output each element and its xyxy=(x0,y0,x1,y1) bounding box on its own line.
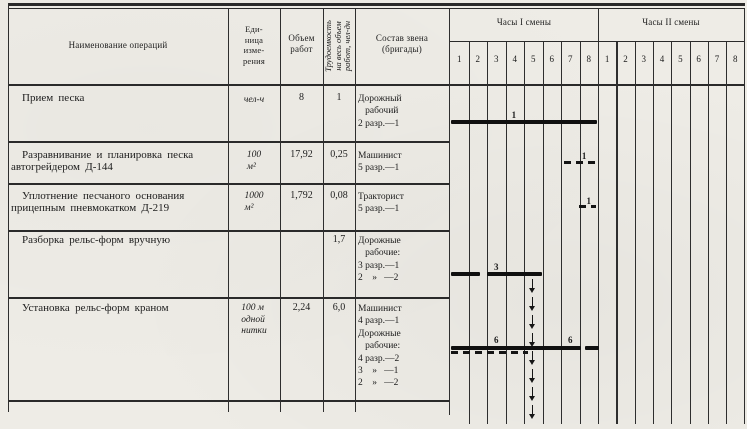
table-top-rule xyxy=(8,3,745,6)
transfer-arrow-dash xyxy=(532,405,534,414)
gantt-bar-label: 1 xyxy=(577,151,591,161)
gantt-bar xyxy=(585,346,599,350)
row-unit-text: чел-ч xyxy=(244,95,264,107)
header-shift1-title: Часы I смены xyxy=(450,17,598,28)
row-crew-list: Машинист 5 разр.—1 xyxy=(358,150,448,175)
transfer-arrow-head-icon xyxy=(529,306,535,311)
hour-cell-shift2-7: 7 xyxy=(708,54,726,65)
row-unit-cell: 1000 м² xyxy=(228,191,280,214)
header-crew: Состав звена (бригады) xyxy=(356,33,448,54)
row-crew-list: Машинист 4 разр.—1 Дорожные рабочие: 4 р… xyxy=(358,303,448,390)
header-operations: Наименование операций xyxy=(10,40,226,51)
gantt-col-line xyxy=(690,42,691,424)
transfer-arrow-head-icon xyxy=(529,324,535,329)
hour-cell-shift2-3: 3 xyxy=(635,54,653,65)
col-line-shift-divider xyxy=(598,9,599,424)
row-unit-cell: 100 м² xyxy=(228,150,280,173)
gantt-bar xyxy=(451,120,597,124)
transfer-arrow-dash xyxy=(532,351,534,360)
hour-cell-shift1-1: 1 xyxy=(450,54,469,65)
row-labor-value: 6,0 xyxy=(323,303,355,314)
header-shift2-title: Часы II смены xyxy=(598,17,744,28)
table-right-border xyxy=(744,9,745,424)
transfer-arrow-head-icon xyxy=(529,396,535,401)
row-operation-name: Разравнивание и планировка пескаавтогрей… xyxy=(11,150,225,173)
header-labor-rotated: Трудоемкость на весь объем работ, чел-дн xyxy=(324,7,354,85)
gantt-col-line xyxy=(580,42,581,424)
gantt-col-line xyxy=(487,42,488,424)
col-line-crew xyxy=(355,9,356,412)
gantt-col-line xyxy=(524,42,525,424)
gantt-col-line xyxy=(561,42,562,424)
hour-cell-shift2-6: 6 xyxy=(690,54,708,65)
row-operation-name: Установка рельс-форм краном xyxy=(11,303,225,315)
row-unit-text: 100 м² xyxy=(247,150,261,173)
gantt-bar-label: 1 xyxy=(582,196,596,206)
row-operation-name: Уплотнение песчаного основанияприцепным … xyxy=(11,191,225,214)
gantt-bar-label: 1 xyxy=(507,110,521,120)
hour-cell-shift1-3: 3 xyxy=(487,54,506,65)
gantt-col-line xyxy=(469,42,470,424)
row-unit-text: 1000 м² xyxy=(245,191,264,214)
row-crew-list: Дорожные рабочие: 3 разр.—1 2 » —2 xyxy=(358,235,448,285)
gantt-col-line xyxy=(653,42,654,424)
hour-cell-shift1-6: 6 xyxy=(543,54,562,65)
gantt-bar-label: 6 xyxy=(489,335,503,345)
col-line-gantt-start xyxy=(449,9,450,415)
gantt-col-line xyxy=(543,42,544,424)
row-labor-value: 1,7 xyxy=(323,235,355,246)
col-line-volume xyxy=(280,9,281,412)
transfer-arrow-dash xyxy=(532,333,534,342)
row-crew-list: Дорожный рабочий 2 разр.—1 xyxy=(358,93,448,130)
row-unit-cell: чел-ч xyxy=(228,93,280,107)
hour-cell-shift1-2: 2 xyxy=(469,54,488,65)
hours-subheader-rule xyxy=(450,41,744,42)
transfer-arrow-dash xyxy=(532,279,534,288)
table-left-border xyxy=(8,3,9,412)
row-labor-value: 1 xyxy=(323,93,355,104)
gantt-bar-label: 3 xyxy=(489,262,503,272)
row-operation-name: Разборка рельс-форм вручную xyxy=(11,235,225,247)
hour-cell-shift1-8: 8 xyxy=(580,54,599,65)
row-volume-value: 8 xyxy=(280,93,323,104)
gantt-bar xyxy=(564,161,596,164)
table-top-rule-thin xyxy=(8,8,745,9)
row-volume-value: 2,24 xyxy=(280,303,323,314)
gantt-col-line xyxy=(708,42,709,424)
transfer-arrow-dash xyxy=(532,387,534,396)
gantt-bar xyxy=(487,272,542,276)
gantt-bar xyxy=(451,346,581,350)
transfer-arrow-dash xyxy=(532,297,534,306)
hour-cell-shift2-5: 5 xyxy=(671,54,689,65)
transfer-arrow-head-icon xyxy=(529,378,535,383)
header-unit: Еди- ница изме- рения xyxy=(229,24,279,66)
row-volume-value: 1,792 xyxy=(280,191,323,202)
row-crew-list: Тракторист 5 разр.—1 xyxy=(358,191,448,216)
row-volume-value: 17,92 xyxy=(280,150,323,161)
row-unit-text: 100 м одной нитки xyxy=(241,303,267,338)
hour-cell-shift1-4: 4 xyxy=(506,54,525,65)
row-labor-value: 0,25 xyxy=(323,150,355,161)
row-labor-value: 0,08 xyxy=(323,191,355,202)
gantt-bar-label: 6 xyxy=(563,335,577,345)
transfer-arrow-head-icon xyxy=(529,342,535,347)
gantt-col-line xyxy=(671,42,672,424)
gantt-bar xyxy=(451,272,480,276)
transfer-arrow-dash xyxy=(532,315,534,324)
transfer-arrow-dash xyxy=(532,369,534,378)
gantt-col-line xyxy=(506,42,507,424)
hour-cell-shift2-4: 4 xyxy=(653,54,671,65)
row-unit-cell: 100 м одной нитки xyxy=(228,303,280,338)
gantt-col-line xyxy=(616,42,617,424)
gantt-col-line xyxy=(635,42,636,424)
hour-cell-shift2-2: 2 xyxy=(616,54,634,65)
hour-cell-shift1-5: 5 xyxy=(524,54,543,65)
hour-cell-shift2-8: 8 xyxy=(726,54,744,65)
gantt-bar xyxy=(451,351,528,354)
transfer-arrow-head-icon xyxy=(529,288,535,293)
transfer-arrow-head-icon xyxy=(529,360,535,365)
hour-cell-shift2-1: 1 xyxy=(598,54,616,65)
row-operation-name: Прием песка xyxy=(11,93,225,105)
scanned-work-schedule-table: Наименование операций Еди- ница изме- ре… xyxy=(0,0,747,429)
header-volume: Объем работ xyxy=(281,33,322,54)
hour-cell-shift1-7: 7 xyxy=(561,54,580,65)
transfer-arrow-head-icon xyxy=(529,414,535,419)
gantt-col-line xyxy=(726,42,727,424)
